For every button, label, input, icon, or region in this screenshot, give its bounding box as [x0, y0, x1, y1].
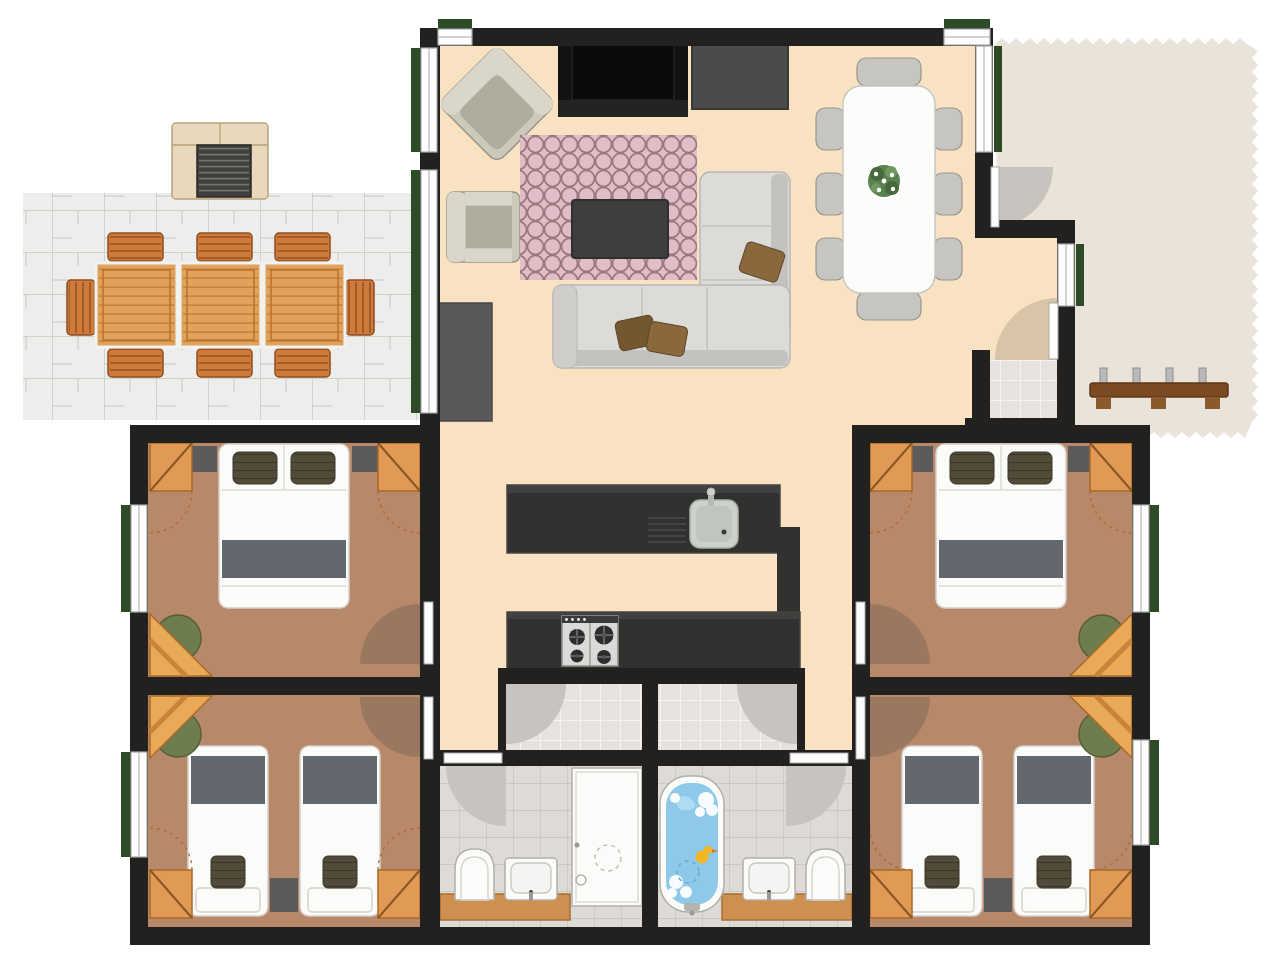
table-section: [96, 263, 177, 347]
coffee-table: [572, 200, 668, 258]
sofa-cushion: [646, 321, 689, 357]
wall-bottom: [130, 927, 1150, 945]
outdoor-chair: [108, 349, 163, 377]
floor-plan-page: [0, 0, 1280, 963]
outdoor-dining-table: [67, 233, 374, 377]
outdoor-chair: [275, 349, 330, 377]
pillow: [211, 856, 245, 888]
door-leaf-bedroom-tr: [856, 602, 865, 664]
pillow: [1037, 856, 1071, 888]
bench-plank: [1090, 383, 1228, 397]
centerpiece-plant: [868, 165, 900, 197]
tv-lowboard: [558, 35, 688, 117]
pillow: [291, 452, 335, 484]
window-left-wall-upper: [411, 48, 437, 152]
wall-mid-right: [870, 677, 1132, 695]
outdoor-chair: [346, 280, 374, 335]
pillow: [950, 452, 994, 484]
bedside-mat: [352, 446, 379, 472]
island-counter: [507, 485, 780, 553]
wall-hall-right-side: [797, 684, 805, 752]
pillow: [323, 856, 357, 888]
wall-bath-divider: [642, 766, 658, 928]
living-room: [437, 35, 790, 421]
washbasin: [743, 858, 795, 901]
single-bed: [188, 746, 268, 916]
pillow: [1008, 452, 1052, 484]
wall-top: [420, 28, 993, 46]
table-section: [264, 263, 345, 347]
wall-hall-left-side: [498, 684, 506, 752]
armchair: [447, 192, 520, 262]
single-bed: [1014, 746, 1094, 916]
toilet: [806, 849, 845, 900]
window-dining-right: [976, 46, 1002, 152]
door-leaf-bathroom-right: [790, 753, 848, 763]
window-top-left-corner: [438, 19, 472, 45]
bedside-mat: [190, 446, 217, 472]
outdoor-chair: [275, 233, 330, 261]
shower-cabin: [572, 768, 642, 906]
door-leaf-bathroom-left: [444, 753, 502, 763]
bench-foot: [1151, 397, 1166, 409]
single-bed: [902, 746, 982, 916]
door-leaf-dining-exterior: [991, 167, 999, 227]
window-bedroom-tr: [1133, 505, 1159, 612]
pillow: [925, 856, 959, 888]
lower-counter: [507, 612, 800, 670]
door-leaf-bedroom-bl: [424, 697, 433, 759]
door-leaf-entry: [1049, 303, 1058, 359]
wall-screen: [692, 45, 788, 109]
wall-right-outer: [1132, 425, 1150, 945]
window-bedroom-br: [1133, 740, 1159, 845]
window-bedroom-bl: [121, 752, 147, 857]
floor-plan: [0, 0, 1280, 963]
wall-inner-right: [852, 443, 870, 927]
nightstand: [270, 878, 298, 912]
window-top-right-corner: [944, 19, 990, 45]
wall-entry-left: [972, 350, 990, 418]
wall-counter-bottom: [498, 668, 805, 684]
wall-br-block-top: [852, 425, 1150, 443]
wall-inner-left: [420, 443, 440, 927]
bench-foot: [1205, 397, 1220, 409]
wall-left-outer: [130, 425, 148, 945]
outdoor-chair: [197, 349, 252, 377]
sideboard: [437, 303, 492, 421]
window-bedroom-tl: [121, 505, 147, 612]
bench-foot: [1096, 397, 1111, 409]
window-entry-right: [1058, 244, 1084, 306]
single-bed: [300, 746, 380, 916]
double-bed: [936, 444, 1066, 608]
table-section: [180, 263, 261, 347]
bbq-grill: [172, 123, 268, 199]
double-bed: [219, 444, 349, 608]
outdoor-chair: [67, 280, 95, 335]
washbasin: [505, 858, 557, 901]
outdoor-chair: [197, 233, 252, 261]
wall-mid-left: [148, 677, 420, 695]
window-left-wall-lower: [411, 170, 437, 413]
door-leaf-bedroom-tl: [424, 602, 433, 664]
gas-hob: [562, 616, 618, 666]
nightstand: [984, 878, 1012, 912]
door-leaf-bedroom-br: [856, 697, 865, 759]
pillow: [233, 452, 277, 484]
wall-bl-block-top: [130, 425, 440, 443]
outdoor-chair: [108, 233, 163, 261]
entry-vestibule-floor: [990, 357, 1057, 418]
toilet: [455, 849, 494, 900]
bathtub: [660, 776, 724, 916]
